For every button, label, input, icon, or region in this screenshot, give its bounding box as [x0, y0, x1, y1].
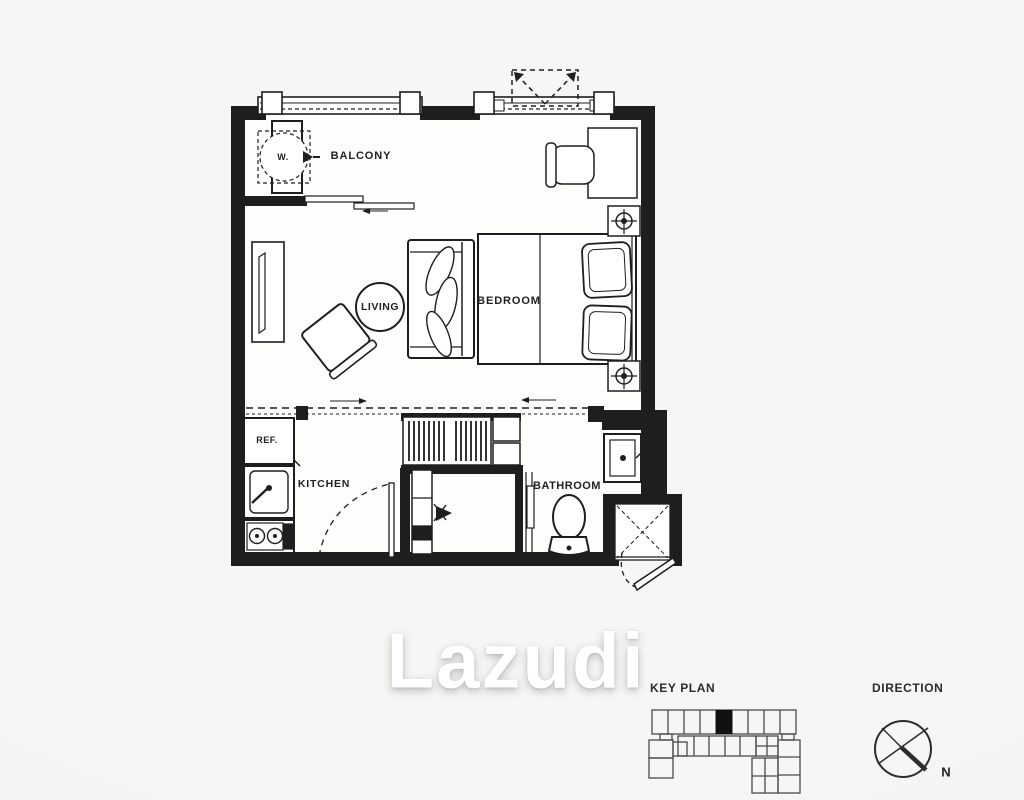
direction-title: DIRECTION: [872, 681, 943, 695]
shelf-icon: [493, 417, 520, 465]
desk-chair-icon: [546, 143, 594, 187]
floor-plan-image: BALCONY LIVING BEDROOM KITCHEN BATHROOM …: [0, 0, 1024, 800]
room-label-kitchen: KITCHEN: [298, 478, 350, 490]
toilet-icon: [549, 495, 589, 555]
shaft: [615, 504, 670, 560]
nightstand-lamp-icon: [608, 361, 640, 391]
unit-highlight: [716, 710, 732, 734]
shoe-cabinet-icon: [412, 470, 432, 554]
compass-icon: [875, 721, 931, 777]
refrigerator-label: REF.: [256, 435, 278, 445]
desk-icon: [588, 128, 637, 198]
key-plan-title: KEY PLAN: [650, 681, 715, 695]
room-label-bedroom: BEDROOM: [477, 295, 541, 307]
pillow-icon: [582, 305, 632, 361]
key-plan-map: [649, 710, 800, 793]
balcony-railing: [258, 92, 422, 114]
room-label-balcony: BALCONY: [331, 150, 392, 162]
sofa-icon: [408, 240, 474, 360]
wardrobe-icon: [403, 417, 491, 465]
kitchen-sink-icon: [244, 466, 294, 518]
washer-label: W.: [277, 152, 289, 162]
room-label-bathroom: BATHROOM: [533, 480, 601, 492]
tv-icon: [252, 242, 284, 342]
stove-icon: [244, 520, 294, 553]
pillow-icon: [582, 242, 633, 298]
watermark-logo: Lazudi: [387, 616, 646, 707]
shower-basin-icon: [604, 434, 641, 482]
north-label: N: [941, 765, 950, 780]
room-label-living: LIVING: [361, 301, 399, 313]
nightstand-lamp-icon: [608, 206, 640, 236]
